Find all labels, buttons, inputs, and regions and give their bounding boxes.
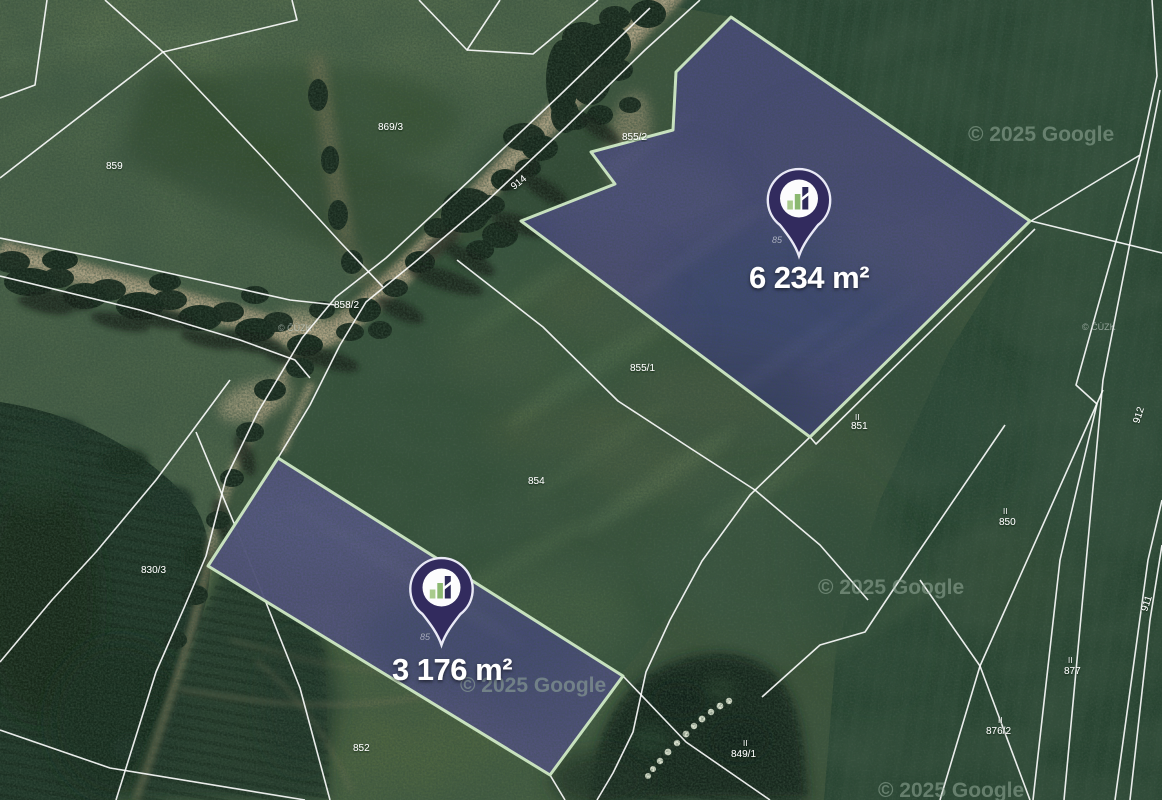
svg-text:855/1: 855/1 [630,363,655,374]
svg-text:85: 85 [772,235,783,245]
svg-text:858/2: 858/2 [334,300,359,311]
svg-text:876/2: 876/2 [986,726,1011,737]
svg-text:851: 851 [851,421,868,432]
svg-text:6 234 m²: 6 234 m² [749,260,869,295]
svg-text:830/3: 830/3 [141,565,166,576]
svg-text:849/1: 849/1 [731,749,756,760]
svg-text:852: 852 [353,743,370,754]
svg-text:869/3: 869/3 [378,122,403,133]
svg-text:II: II [743,739,747,748]
svg-text:© 2025 Google: © 2025 Google [968,123,1114,146]
svg-text:859: 859 [106,161,123,172]
svg-text:II: II [998,716,1002,725]
svg-text:© ČÚZK: © ČÚZK [278,323,312,333]
svg-text:© 2025 Google: © 2025 Google [878,779,1024,800]
svg-text:854: 854 [528,476,545,487]
svg-text:877: 877 [1064,666,1081,677]
svg-text:II: II [1068,656,1072,665]
svg-text:© 2025 Google: © 2025 Google [818,576,964,599]
svg-text:II: II [855,413,859,422]
svg-text:855/2: 855/2 [622,132,647,143]
svg-text:II: II [1003,507,1007,516]
svg-text:© ČÚZK: © ČÚZK [1082,322,1116,332]
svg-text:3 176 m²: 3 176 m² [392,652,512,687]
svg-text:850: 850 [999,517,1016,528]
svg-text:85: 85 [420,632,431,642]
